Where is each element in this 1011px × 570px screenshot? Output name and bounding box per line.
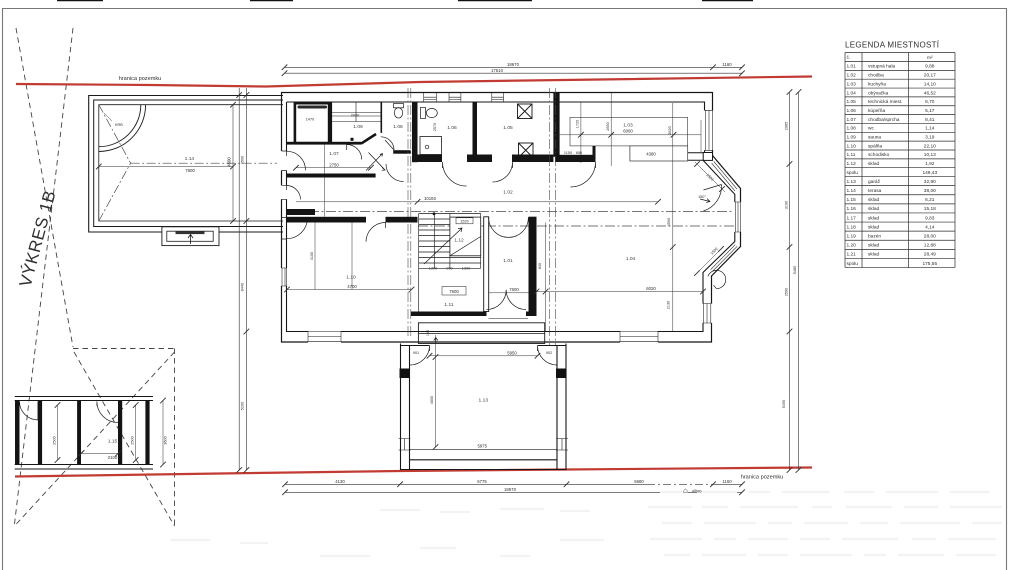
svg-text:1300: 1300 bbox=[429, 266, 437, 270]
svg-text:3,19: 3,19 bbox=[925, 135, 935, 141]
svg-text:spálňa: spálňa bbox=[868, 143, 882, 149]
svg-text:4380: 4380 bbox=[646, 152, 656, 157]
svg-text:kúpeľňa: kúpeľňa bbox=[868, 108, 885, 114]
svg-text:1.02: 1.02 bbox=[847, 73, 857, 79]
svg-text:6775: 6775 bbox=[477, 479, 487, 484]
svg-text:5680: 5680 bbox=[634, 479, 644, 484]
svg-text:3520: 3520 bbox=[668, 126, 672, 134]
svg-text:6000: 6000 bbox=[623, 128, 633, 133]
svg-text:sklad: sklad bbox=[868, 161, 880, 167]
svg-text:1160: 1160 bbox=[722, 62, 732, 67]
svg-text:1.09: 1.09 bbox=[847, 135, 857, 141]
svg-text:1.21: 1.21 bbox=[847, 252, 857, 258]
svg-text:17510: 17510 bbox=[491, 68, 504, 73]
svg-text:sklad: sklad bbox=[868, 206, 880, 212]
svg-text:schodisko: schodisko bbox=[868, 152, 890, 158]
svg-text:4500: 4500 bbox=[667, 218, 671, 226]
svg-text:2020: 2020 bbox=[351, 114, 359, 118]
svg-text:1500: 1500 bbox=[710, 247, 719, 256]
svg-text:1.10: 1.10 bbox=[346, 275, 356, 281]
svg-text:1.13: 1.13 bbox=[479, 397, 489, 403]
svg-text:1.15: 1.15 bbox=[108, 438, 118, 444]
svg-text:8,41: 8,41 bbox=[925, 117, 935, 123]
svg-text:1.12: 1.12 bbox=[454, 238, 464, 244]
svg-text:840: 840 bbox=[538, 263, 542, 269]
svg-text:1.09: 1.09 bbox=[353, 124, 363, 130]
svg-text:900: 900 bbox=[446, 266, 452, 270]
svg-text:1.11: 1.11 bbox=[444, 302, 453, 308]
svg-text:4600: 4600 bbox=[430, 396, 434, 404]
svg-text:18670: 18670 bbox=[507, 62, 520, 67]
svg-text:1520: 1520 bbox=[460, 220, 468, 224]
svg-text:wc: wc bbox=[868, 127, 874, 132]
svg-text:1.16: 1.16 bbox=[847, 206, 857, 212]
svg-text:902: 902 bbox=[546, 351, 552, 355]
svg-text:6020: 6020 bbox=[646, 286, 656, 291]
svg-text:5975: 5975 bbox=[478, 444, 488, 449]
svg-text:LEGENDA MIESTNOSTÍ: LEGENDA MIESTNOSTÍ bbox=[845, 41, 940, 50]
svg-text:technická miest.: technická miest. bbox=[868, 99, 902, 105]
svg-text:6,70: 6,70 bbox=[925, 99, 935, 105]
svg-text:1.12: 1.12 bbox=[847, 161, 857, 167]
svg-text:4130: 4130 bbox=[335, 479, 345, 484]
svg-text:obývačka: obývačka bbox=[868, 90, 889, 96]
svg-text:hranica pozemku: hranica pozemku bbox=[119, 76, 162, 82]
svg-text:20,17: 20,17 bbox=[924, 73, 936, 79]
svg-text:2590: 2590 bbox=[785, 288, 789, 296]
svg-text:vstupná hala: vstupná hala bbox=[868, 64, 896, 70]
svg-text:1.17: 1.17 bbox=[847, 215, 857, 221]
svg-text:9,88: 9,88 bbox=[925, 64, 935, 70]
svg-text:1.04: 1.04 bbox=[626, 256, 636, 262]
svg-text:901: 901 bbox=[413, 351, 419, 355]
svg-text:1.08: 1.08 bbox=[847, 126, 857, 132]
svg-text:1720: 1720 bbox=[576, 120, 580, 128]
svg-text:1.08: 1.08 bbox=[393, 124, 403, 130]
svg-text:650: 650 bbox=[576, 151, 582, 155]
svg-text:1.04: 1.04 bbox=[847, 90, 857, 96]
svg-text:7600: 7600 bbox=[449, 289, 459, 294]
svg-text:12,88: 12,88 bbox=[924, 243, 936, 249]
svg-text:7600: 7600 bbox=[509, 287, 519, 292]
svg-text:2500: 2500 bbox=[53, 436, 57, 444]
svg-text:28,00: 28,00 bbox=[924, 234, 936, 240]
svg-text:4,14: 4,14 bbox=[925, 224, 935, 230]
svg-text:1.01: 1.01 bbox=[847, 64, 857, 70]
svg-text:2570: 2570 bbox=[433, 123, 437, 131]
svg-text:1150: 1150 bbox=[564, 151, 572, 155]
svg-text:1.13: 1.13 bbox=[847, 179, 857, 185]
svg-text:1300: 1300 bbox=[462, 266, 470, 270]
svg-text:165: 165 bbox=[426, 330, 430, 336]
svg-text:1.15: 1.15 bbox=[847, 197, 857, 203]
svg-text:15,18: 15,18 bbox=[924, 206, 936, 212]
svg-text:1.18: 1.18 bbox=[847, 224, 857, 230]
svg-text:⌂: ⌂ bbox=[683, 486, 688, 495]
svg-text:1.07: 1.07 bbox=[329, 151, 339, 157]
svg-text:6,21: 6,21 bbox=[925, 197, 935, 203]
svg-text:1.07: 1.07 bbox=[847, 117, 857, 123]
svg-text:9,83: 9,83 bbox=[925, 215, 935, 221]
svg-text:1.05: 1.05 bbox=[847, 99, 857, 105]
svg-text:alino: alino bbox=[692, 489, 702, 494]
svg-text:1,92: 1,92 bbox=[925, 161, 935, 167]
svg-text:1.11: 1.11 bbox=[847, 152, 856, 158]
svg-text:1,14: 1,14 bbox=[925, 126, 935, 132]
svg-text:1.10: 1.10 bbox=[847, 143, 857, 149]
svg-text:150°: 150° bbox=[698, 195, 706, 199]
svg-text:4500: 4500 bbox=[227, 157, 232, 167]
svg-text:38,00: 38,00 bbox=[924, 188, 936, 194]
svg-text:7800: 7800 bbox=[185, 168, 195, 173]
svg-text:chodba/sprcha: chodba/sprcha bbox=[868, 117, 900, 123]
svg-text:10,13: 10,13 bbox=[924, 152, 936, 158]
svg-text:sklad: sklad bbox=[868, 243, 880, 249]
svg-text:sklad: sklad bbox=[868, 197, 880, 203]
svg-text:sklad: sklad bbox=[868, 224, 880, 230]
svg-text:4500: 4500 bbox=[241, 156, 245, 164]
svg-text:175,55: 175,55 bbox=[922, 261, 937, 267]
svg-text:2500: 2500 bbox=[131, 436, 135, 444]
svg-text:2750: 2750 bbox=[329, 162, 339, 167]
svg-text:5495: 5495 bbox=[782, 400, 786, 408]
svg-text:chodba: chodba bbox=[868, 73, 884, 79]
svg-text:1.14: 1.14 bbox=[185, 156, 195, 162]
svg-text:1470: 1470 bbox=[306, 118, 314, 122]
svg-text:terasa: terasa bbox=[868, 188, 882, 194]
svg-text:1160: 1160 bbox=[722, 479, 732, 484]
svg-text:3600: 3600 bbox=[164, 436, 168, 444]
svg-text:5200: 5200 bbox=[241, 402, 245, 410]
svg-text:32,80: 32,80 bbox=[924, 179, 936, 185]
svg-text:8440: 8440 bbox=[241, 283, 245, 291]
svg-text:22,10: 22,10 bbox=[924, 143, 936, 149]
svg-text:garáž: garáž bbox=[868, 179, 881, 185]
svg-text:2985: 2985 bbox=[785, 122, 789, 130]
svg-text:VÝKRES 1B: VÝKRES 1B bbox=[16, 188, 60, 289]
svg-text:bazén: bazén bbox=[868, 234, 881, 240]
svg-text:2650: 2650 bbox=[606, 122, 610, 130]
svg-text:1.01: 1.01 bbox=[503, 258, 513, 264]
svg-text:5950: 5950 bbox=[507, 350, 517, 355]
svg-text:spolu: spolu bbox=[847, 261, 859, 267]
svg-text:149,43: 149,43 bbox=[922, 170, 937, 176]
svg-text:5,17: 5,17 bbox=[925, 108, 935, 114]
svg-text:spolu: spolu bbox=[847, 170, 859, 176]
svg-text:m²: m² bbox=[927, 55, 933, 61]
svg-text:1.19: 1.19 bbox=[847, 234, 857, 240]
svg-text:28,49: 28,49 bbox=[924, 252, 936, 258]
svg-text:10160: 10160 bbox=[424, 196, 437, 201]
svg-text:1.02: 1.02 bbox=[503, 190, 513, 196]
svg-text:18670: 18670 bbox=[504, 487, 517, 492]
svg-text:1.06: 1.06 bbox=[847, 108, 857, 114]
svg-text:4700: 4700 bbox=[347, 284, 357, 289]
svg-text:1.14: 1.14 bbox=[847, 188, 857, 194]
svg-text:sklad: sklad bbox=[868, 215, 880, 221]
svg-text:3190: 3190 bbox=[785, 201, 789, 209]
svg-text:1.03: 1.03 bbox=[847, 81, 857, 87]
svg-text:kuchyňa: kuchyňa bbox=[868, 81, 886, 87]
svg-text:č.: č. bbox=[847, 55, 851, 61]
svg-text:14,10: 14,10 bbox=[924, 81, 936, 87]
svg-text:1.06: 1.06 bbox=[447, 125, 457, 131]
svg-text:4100: 4100 bbox=[310, 252, 314, 260]
svg-text:2100: 2100 bbox=[108, 455, 118, 460]
svg-text:2130: 2130 bbox=[667, 301, 671, 309]
svg-text:sauna: sauna bbox=[868, 136, 881, 141]
svg-text:1500: 1500 bbox=[705, 173, 714, 182]
svg-text:5480: 5480 bbox=[793, 266, 797, 274]
svg-text:hranica pozemku: hranica pozemku bbox=[741, 475, 784, 481]
svg-text:1.05: 1.05 bbox=[503, 125, 513, 131]
svg-text:1.20: 1.20 bbox=[847, 243, 857, 249]
svg-text:46,52: 46,52 bbox=[924, 90, 936, 96]
svg-text:KRB: KRB bbox=[115, 123, 123, 127]
svg-text:sklad: sklad bbox=[868, 252, 880, 258]
